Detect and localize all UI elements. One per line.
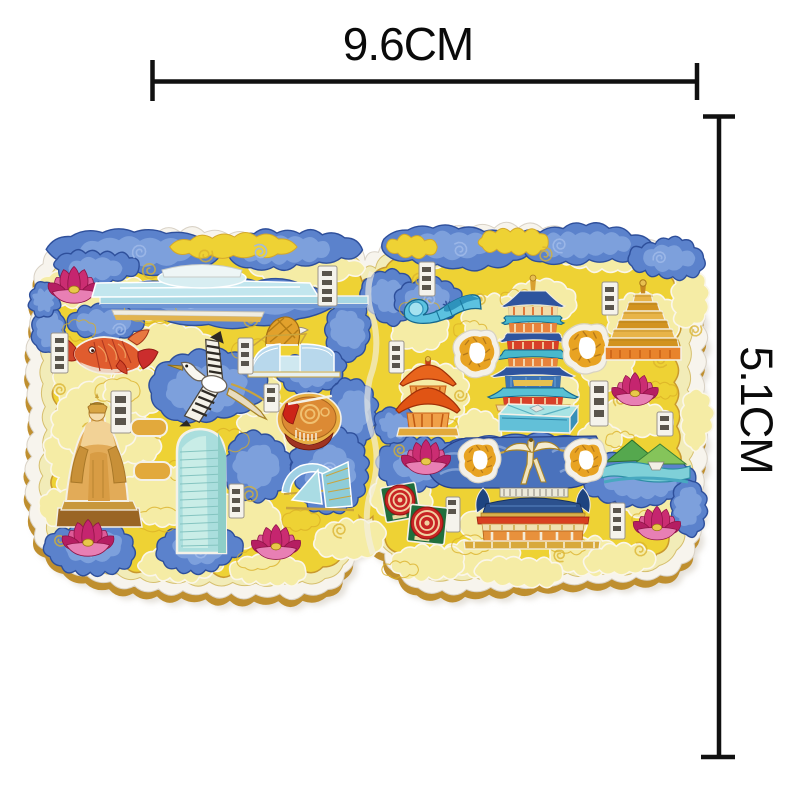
svg-text:9.6CM: 9.6CM (343, 18, 473, 70)
svg-text:5.1CM: 5.1CM (731, 346, 782, 474)
